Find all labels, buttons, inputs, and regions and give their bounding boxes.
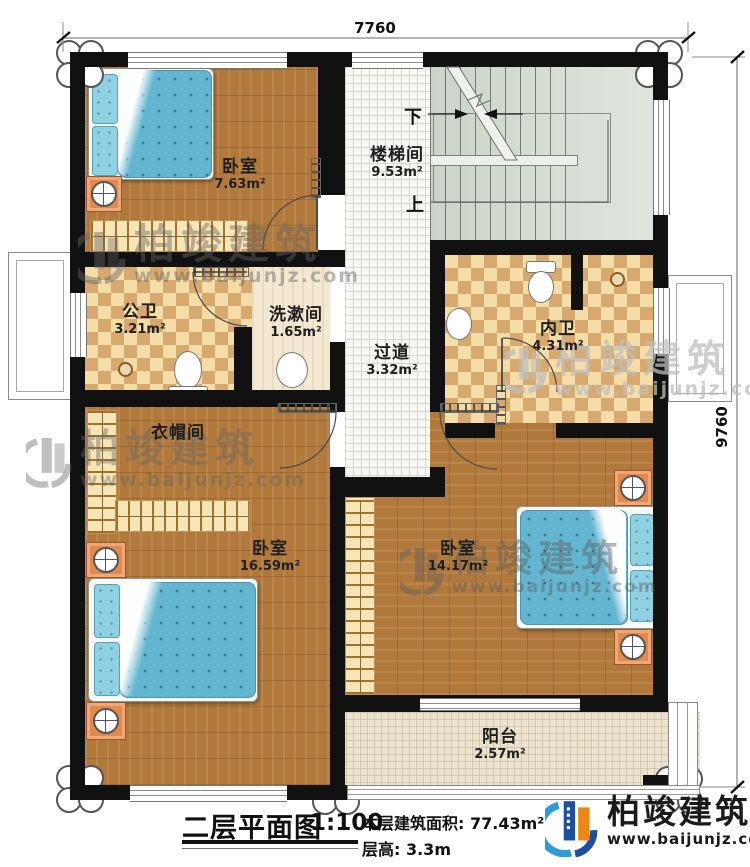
- wall-stub: [318, 250, 345, 267]
- wall-corridor-bottom: [330, 477, 445, 497]
- floor-plan-canvas: 卧室 7.63m² 楼梯间 9.53m² 公卫 3.21m² 洗漱间 1.65m…: [0, 0, 750, 867]
- pillow: [92, 126, 118, 176]
- door-track-bedroom-right: [440, 403, 499, 413]
- wardrobe-top-bedroom: [90, 220, 248, 252]
- nightstand-knob: [93, 708, 119, 734]
- room-label-washroom: 洗漱间 1.65m²: [255, 306, 337, 340]
- pillow: [630, 514, 654, 566]
- wall-bedroom-tl-right: [318, 67, 345, 195]
- window-right-bath: [653, 288, 670, 354]
- wall-stub: [430, 467, 445, 477]
- balcony-railing-right: [668, 702, 698, 786]
- room-label-bedroom-top-left: 卧室 7.63m²: [195, 158, 285, 192]
- wall-shower-stub: [571, 255, 583, 310]
- sink-washroom: [276, 352, 308, 388]
- brand-building-icon: [26, 430, 72, 490]
- window-left-bath: [70, 293, 87, 357]
- title-underline-thin: [182, 848, 358, 849]
- brand-logo-icon: [545, 795, 599, 857]
- dimension-top-value: 7760: [345, 19, 405, 37]
- closet-right-bedroom: [345, 497, 375, 695]
- floor-height-text: 层高: 3.3m: [362, 836, 451, 860]
- floor-area-text: 本层建筑面积: 77.43m²: [362, 810, 544, 834]
- nightstand-knob: [93, 547, 119, 573]
- wall-bath-top: [85, 252, 318, 267]
- sliding-door-balcony: [420, 698, 580, 711]
- window-top-2: [352, 52, 423, 69]
- door-track-ensuite: [496, 385, 506, 425]
- nightstand: [86, 542, 126, 578]
- window-bottom: [130, 785, 287, 802]
- pillow: [94, 584, 120, 638]
- room-label-bedroom-bottom-left: 卧室 16.59m²: [225, 540, 315, 574]
- wall-stair-bottom: [430, 240, 668, 255]
- wall-outer-left: [70, 52, 85, 800]
- bay-window-right-inner: [676, 283, 724, 394]
- room-label-stairwell: 楼梯间 9.53m²: [355, 146, 439, 180]
- window-right-stair: [653, 100, 670, 215]
- dimension-right-value: 9760: [713, 392, 731, 462]
- title-underline-thick: [182, 840, 358, 844]
- wall-bath-divider: [234, 327, 252, 390]
- room-label-ensuite: 内卫 4.31m²: [523, 320, 593, 354]
- wall-corridor-left-upper: [330, 342, 345, 412]
- brand-logo: 柏竣建筑 www.baijunjz.com: [545, 795, 750, 857]
- door-track-bedroom-tl: [311, 158, 321, 198]
- wall-balcony-left: [330, 695, 345, 800]
- floor-drain: [610, 272, 625, 287]
- floor-drain: [118, 362, 133, 377]
- door-track-bedroom-left: [278, 403, 337, 413]
- pillow: [630, 570, 654, 622]
- room-label-balcony: 阳台 2.57m²: [455, 728, 545, 762]
- nightstand-knob: [91, 181, 117, 207]
- door-track-public-bath: [193, 267, 249, 277]
- wall-ensuite-bottom-right: [556, 423, 668, 438]
- nightstand: [614, 629, 652, 665]
- wardrobe-cloakroom-vertical: [87, 410, 117, 534]
- bed-top-left-fold: [118, 70, 156, 176]
- bay-window-left-inner: [16, 260, 64, 392]
- nightstand: [614, 470, 652, 506]
- brand-logo-website: www.baijunjz.com: [607, 830, 750, 848]
- stair-up-label: 上: [406, 191, 424, 217]
- wall-ensuite-bottom-left: [445, 423, 495, 438]
- pillow: [94, 642, 120, 696]
- stair-down-label: 下: [404, 103, 422, 129]
- window-top-1: [128, 52, 287, 69]
- nightstand: [86, 702, 126, 740]
- bed-bottom-left-fold: [120, 582, 164, 696]
- brand-logo-name: 柏竣建筑: [607, 795, 750, 830]
- dimension-tick: [682, 32, 695, 43]
- toilet-bowl-public-bath: [174, 351, 202, 389]
- nightstand-knob: [620, 475, 646, 501]
- wall-stub: [330, 467, 345, 477]
- room-label-corridor: 过道 3.32m²: [352, 344, 432, 378]
- sink-ensuite: [446, 308, 472, 340]
- nightstand-knob: [620, 634, 646, 660]
- wall-ensuite-left: [430, 255, 445, 412]
- toilet-bowl-ensuite: [528, 271, 554, 303]
- wardrobe-cloakroom-horizontal: [115, 500, 250, 532]
- dimension-tick: [731, 51, 744, 63]
- nightstand: [86, 176, 122, 212]
- stair-handrail: [430, 155, 578, 166]
- room-label-cloakroom: 衣帽间: [128, 424, 228, 444]
- room-label-bedroom-right: 卧室 14.17m²: [413, 540, 503, 574]
- bed-right-fold: [590, 510, 626, 623]
- room-label-public-bath: 公卫 3.21m²: [105, 303, 175, 337]
- wall-bedrooms-divider: [330, 497, 345, 695]
